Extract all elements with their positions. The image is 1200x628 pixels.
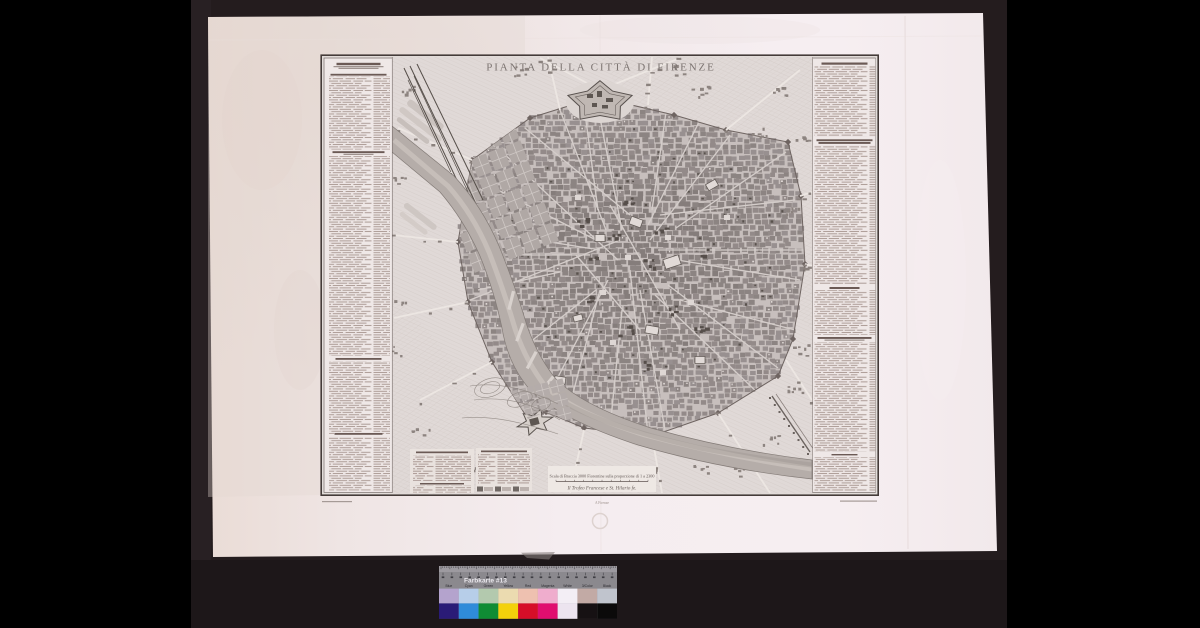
svg-text:Cyan: Cyan	[465, 584, 473, 588]
svg-text:3/Color: 3/Color	[582, 584, 594, 588]
svg-text:Magenta: Magenta	[541, 584, 554, 588]
svg-text:Yellow: Yellow	[503, 584, 513, 588]
svg-text:Red: Red	[525, 584, 531, 588]
svg-text:White: White	[563, 584, 572, 588]
svg-text:Il Trofeo Francese e St. Hilar: Il Trofeo Francese e St. Hilario fe.	[567, 487, 637, 492]
svg-text:Scala di Braccia 3000 Fiorenti: Scala di Braccia 3000 Fiorentine sulla p…	[550, 474, 655, 479]
svg-text:PIANTA DELLA CITTÀ DI FIRENZE: PIANTA DELLA CITTÀ DI FIRENZE	[486, 62, 716, 74]
svg-text:Green: Green	[484, 584, 494, 588]
svg-text:Black: Black	[603, 584, 612, 588]
svg-text:A Firenze: A Firenze	[595, 501, 609, 505]
svg-text:Blue: Blue	[446, 584, 453, 588]
